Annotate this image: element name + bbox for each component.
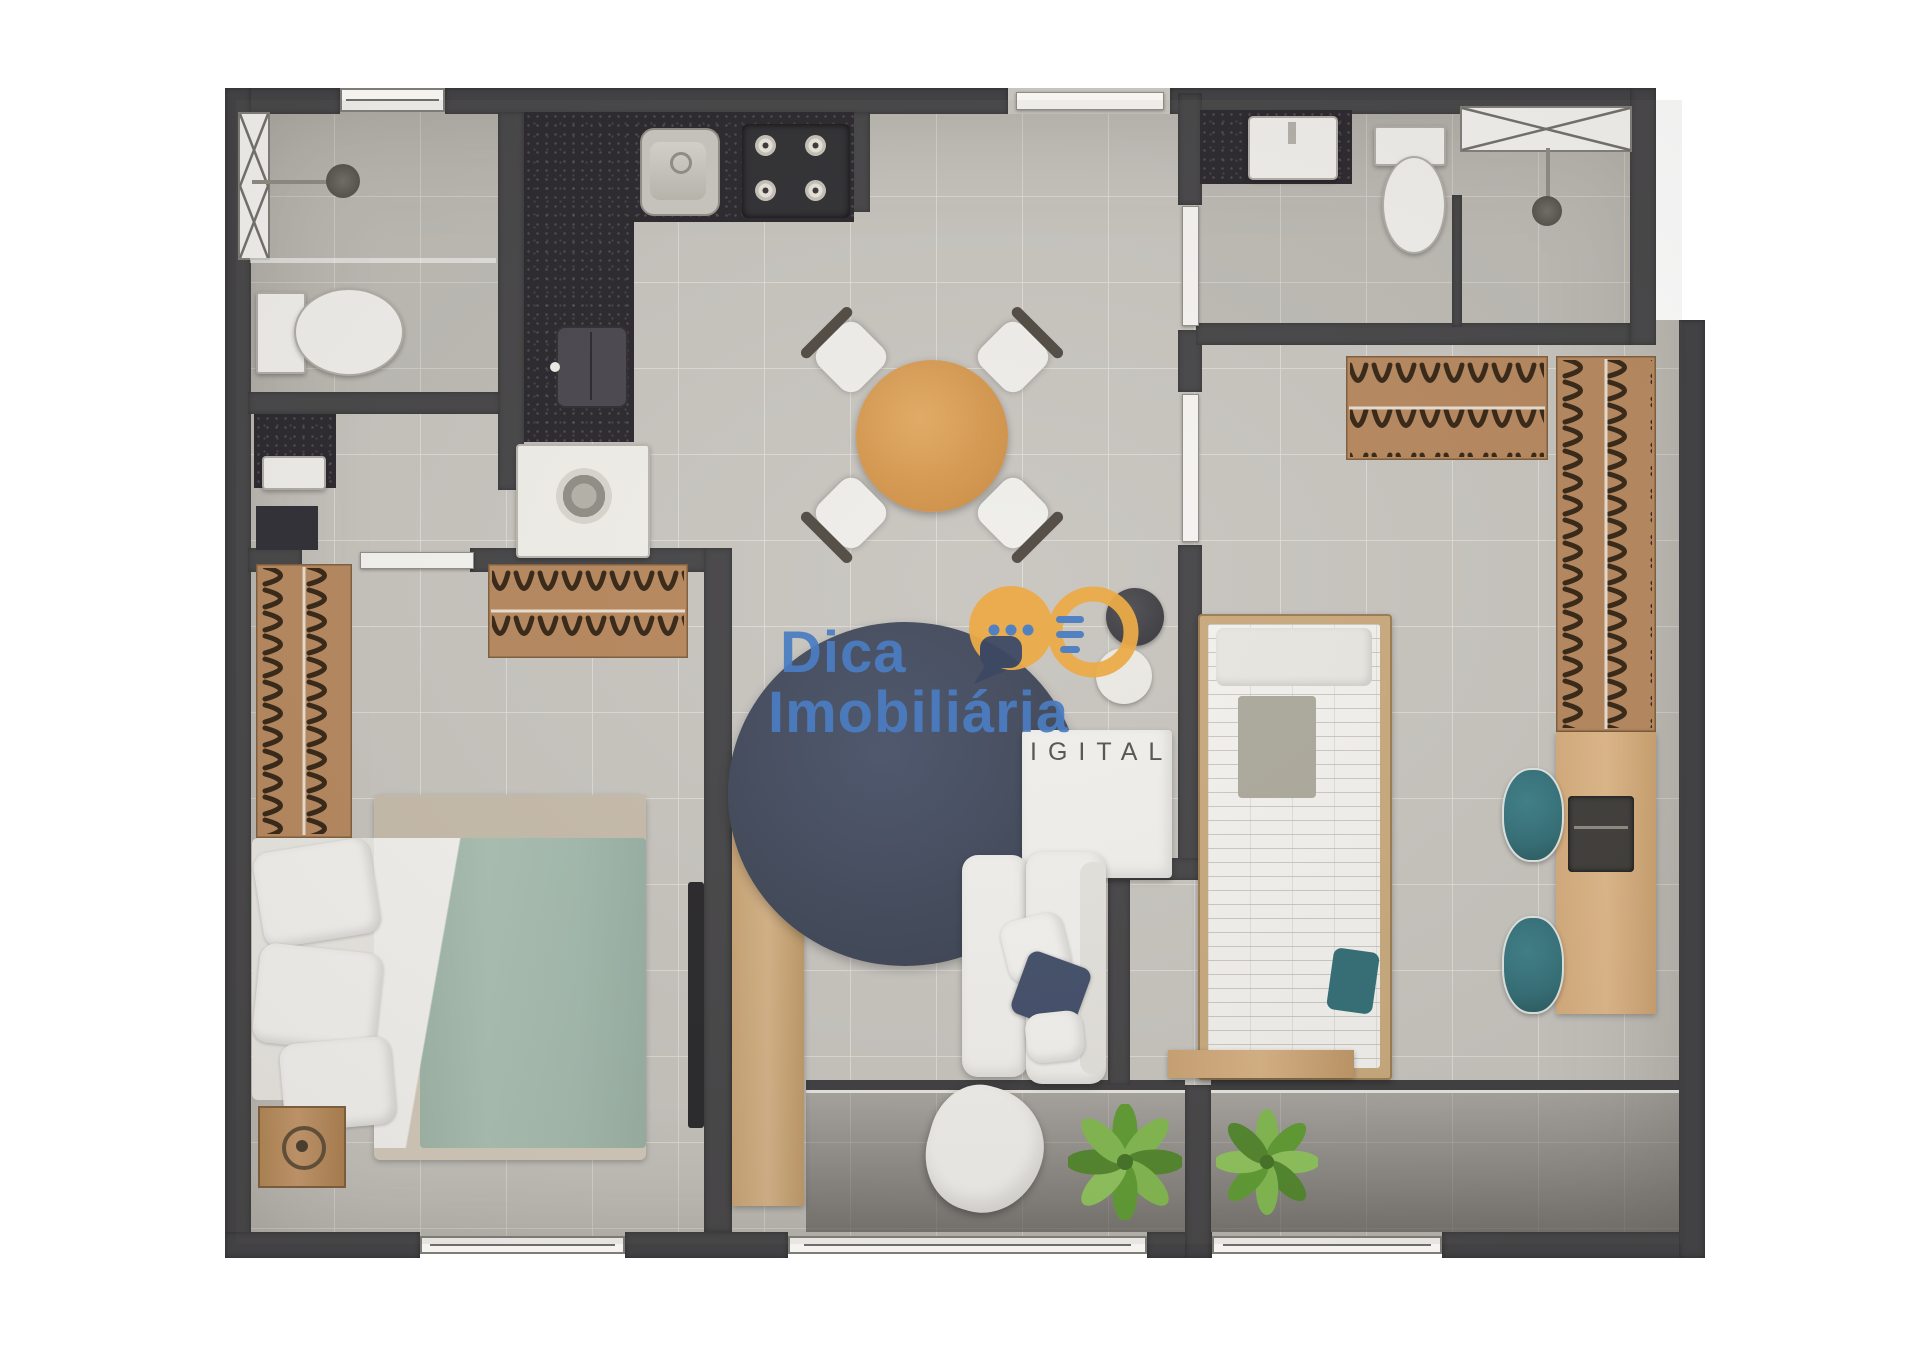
kitchen-faucet — [670, 152, 692, 174]
bed2-blanket — [1238, 696, 1316, 798]
laundry-faucet — [550, 362, 560, 372]
bathroom2-faucet — [1288, 122, 1296, 144]
window-glass-line — [346, 99, 439, 101]
wall-balcony-divider — [1185, 1085, 1211, 1258]
wall-bathroom1-right — [498, 112, 524, 490]
laptop — [1568, 796, 1634, 872]
wardrobe-bedroom1-vertical — [256, 564, 352, 838]
shower-head-icon — [1532, 196, 1562, 226]
window-x-glyph — [1460, 106, 1632, 152]
nightstand — [258, 1106, 346, 1188]
window-glass-line — [804, 1244, 1131, 1246]
wall-left — [225, 88, 251, 1258]
wardrobe-bedroom1-horizontal — [488, 564, 688, 658]
washing-machine — [516, 444, 650, 558]
bed2-pillow — [1216, 628, 1372, 686]
sofa-pillow-white — [1024, 1009, 1087, 1065]
window-bedroom1 — [420, 1236, 625, 1254]
wall-bottom-a — [225, 1232, 420, 1258]
wall-bathroom2-right — [1630, 88, 1656, 345]
shower-glass-partition — [250, 258, 496, 263]
wardrobe-bedroom2-horizontal — [1346, 356, 1548, 460]
vanity-sink — [262, 456, 326, 490]
kitchen-sink — [640, 128, 720, 216]
wall-shower2-partition — [1452, 195, 1462, 327]
floor-plan-image: Dica Imobiliária IGITAL — [0, 0, 1920, 1345]
wall-bathroom1-bottom — [248, 392, 500, 414]
wall-bottom-d — [1442, 1232, 1705, 1258]
bedroom2-door-leaf — [1182, 394, 1199, 542]
bed2-bench — [1168, 1050, 1354, 1078]
wardrobe-bedroom2-vertical — [1556, 356, 1656, 732]
sliding-door-bedroom2 — [1211, 1080, 1679, 1093]
tv-bedroom1 — [688, 882, 704, 1128]
bed2-pillow-teal — [1326, 947, 1380, 1015]
stove-burner — [755, 180, 776, 201]
wall-top-b — [445, 88, 1008, 114]
window-bathroom1-x — [238, 112, 270, 260]
table-lamp-center — [296, 1140, 308, 1152]
wall-right — [1679, 320, 1705, 1258]
wall-living-bedroom2-a — [1178, 93, 1202, 205]
wall-sofa-back — [1108, 880, 1130, 1085]
side-table-white — [1096, 648, 1152, 704]
entry-door-leaf — [1016, 92, 1164, 110]
stove-burner — [755, 135, 776, 156]
plant-icon — [1068, 1104, 1182, 1220]
bedroom1-door-leaf — [360, 552, 474, 569]
stove-burner — [805, 135, 826, 156]
laundry-sink — [556, 326, 628, 408]
toilet-bowl — [294, 288, 404, 376]
window-balcony-left — [788, 1236, 1147, 1254]
toilet-bowl — [1382, 156, 1446, 254]
window-top-recess — [340, 88, 445, 112]
washing-machine-drum — [550, 462, 618, 530]
shower-head-icon — [326, 164, 360, 198]
bed1-pillow — [251, 836, 383, 949]
desk-chair-teal — [1502, 916, 1564, 1014]
laundry-sink-divider — [590, 332, 592, 400]
exterior-notch — [1656, 88, 1920, 320]
window-glass-line — [1223, 1244, 1431, 1246]
stove-burner — [805, 180, 826, 201]
bathroom2-sink — [1248, 116, 1338, 180]
side-table-dark — [1106, 588, 1164, 646]
window-glass-line — [430, 1244, 615, 1246]
wall-bathroom2-bottom — [1196, 323, 1630, 345]
wall-bottom-b — [625, 1232, 788, 1258]
hall-cabinet — [256, 506, 318, 550]
dining-table — [856, 360, 1008, 512]
shower-arm — [1546, 148, 1550, 200]
plant-icon — [1216, 1108, 1318, 1216]
bed1-headrail — [374, 795, 646, 841]
window-x-glyph — [238, 112, 270, 260]
desk-chair-teal — [1502, 768, 1564, 862]
laptop-hinge — [1574, 826, 1628, 829]
desk — [1556, 732, 1656, 1014]
bathroom2-door-leaf — [1182, 206, 1199, 326]
wall-bedroom1-right — [704, 548, 732, 1232]
window-bathroom2-x — [1460, 106, 1632, 152]
stove-cooktop — [742, 124, 850, 218]
window-balcony-right — [1212, 1236, 1442, 1254]
shower-arm — [252, 180, 332, 184]
